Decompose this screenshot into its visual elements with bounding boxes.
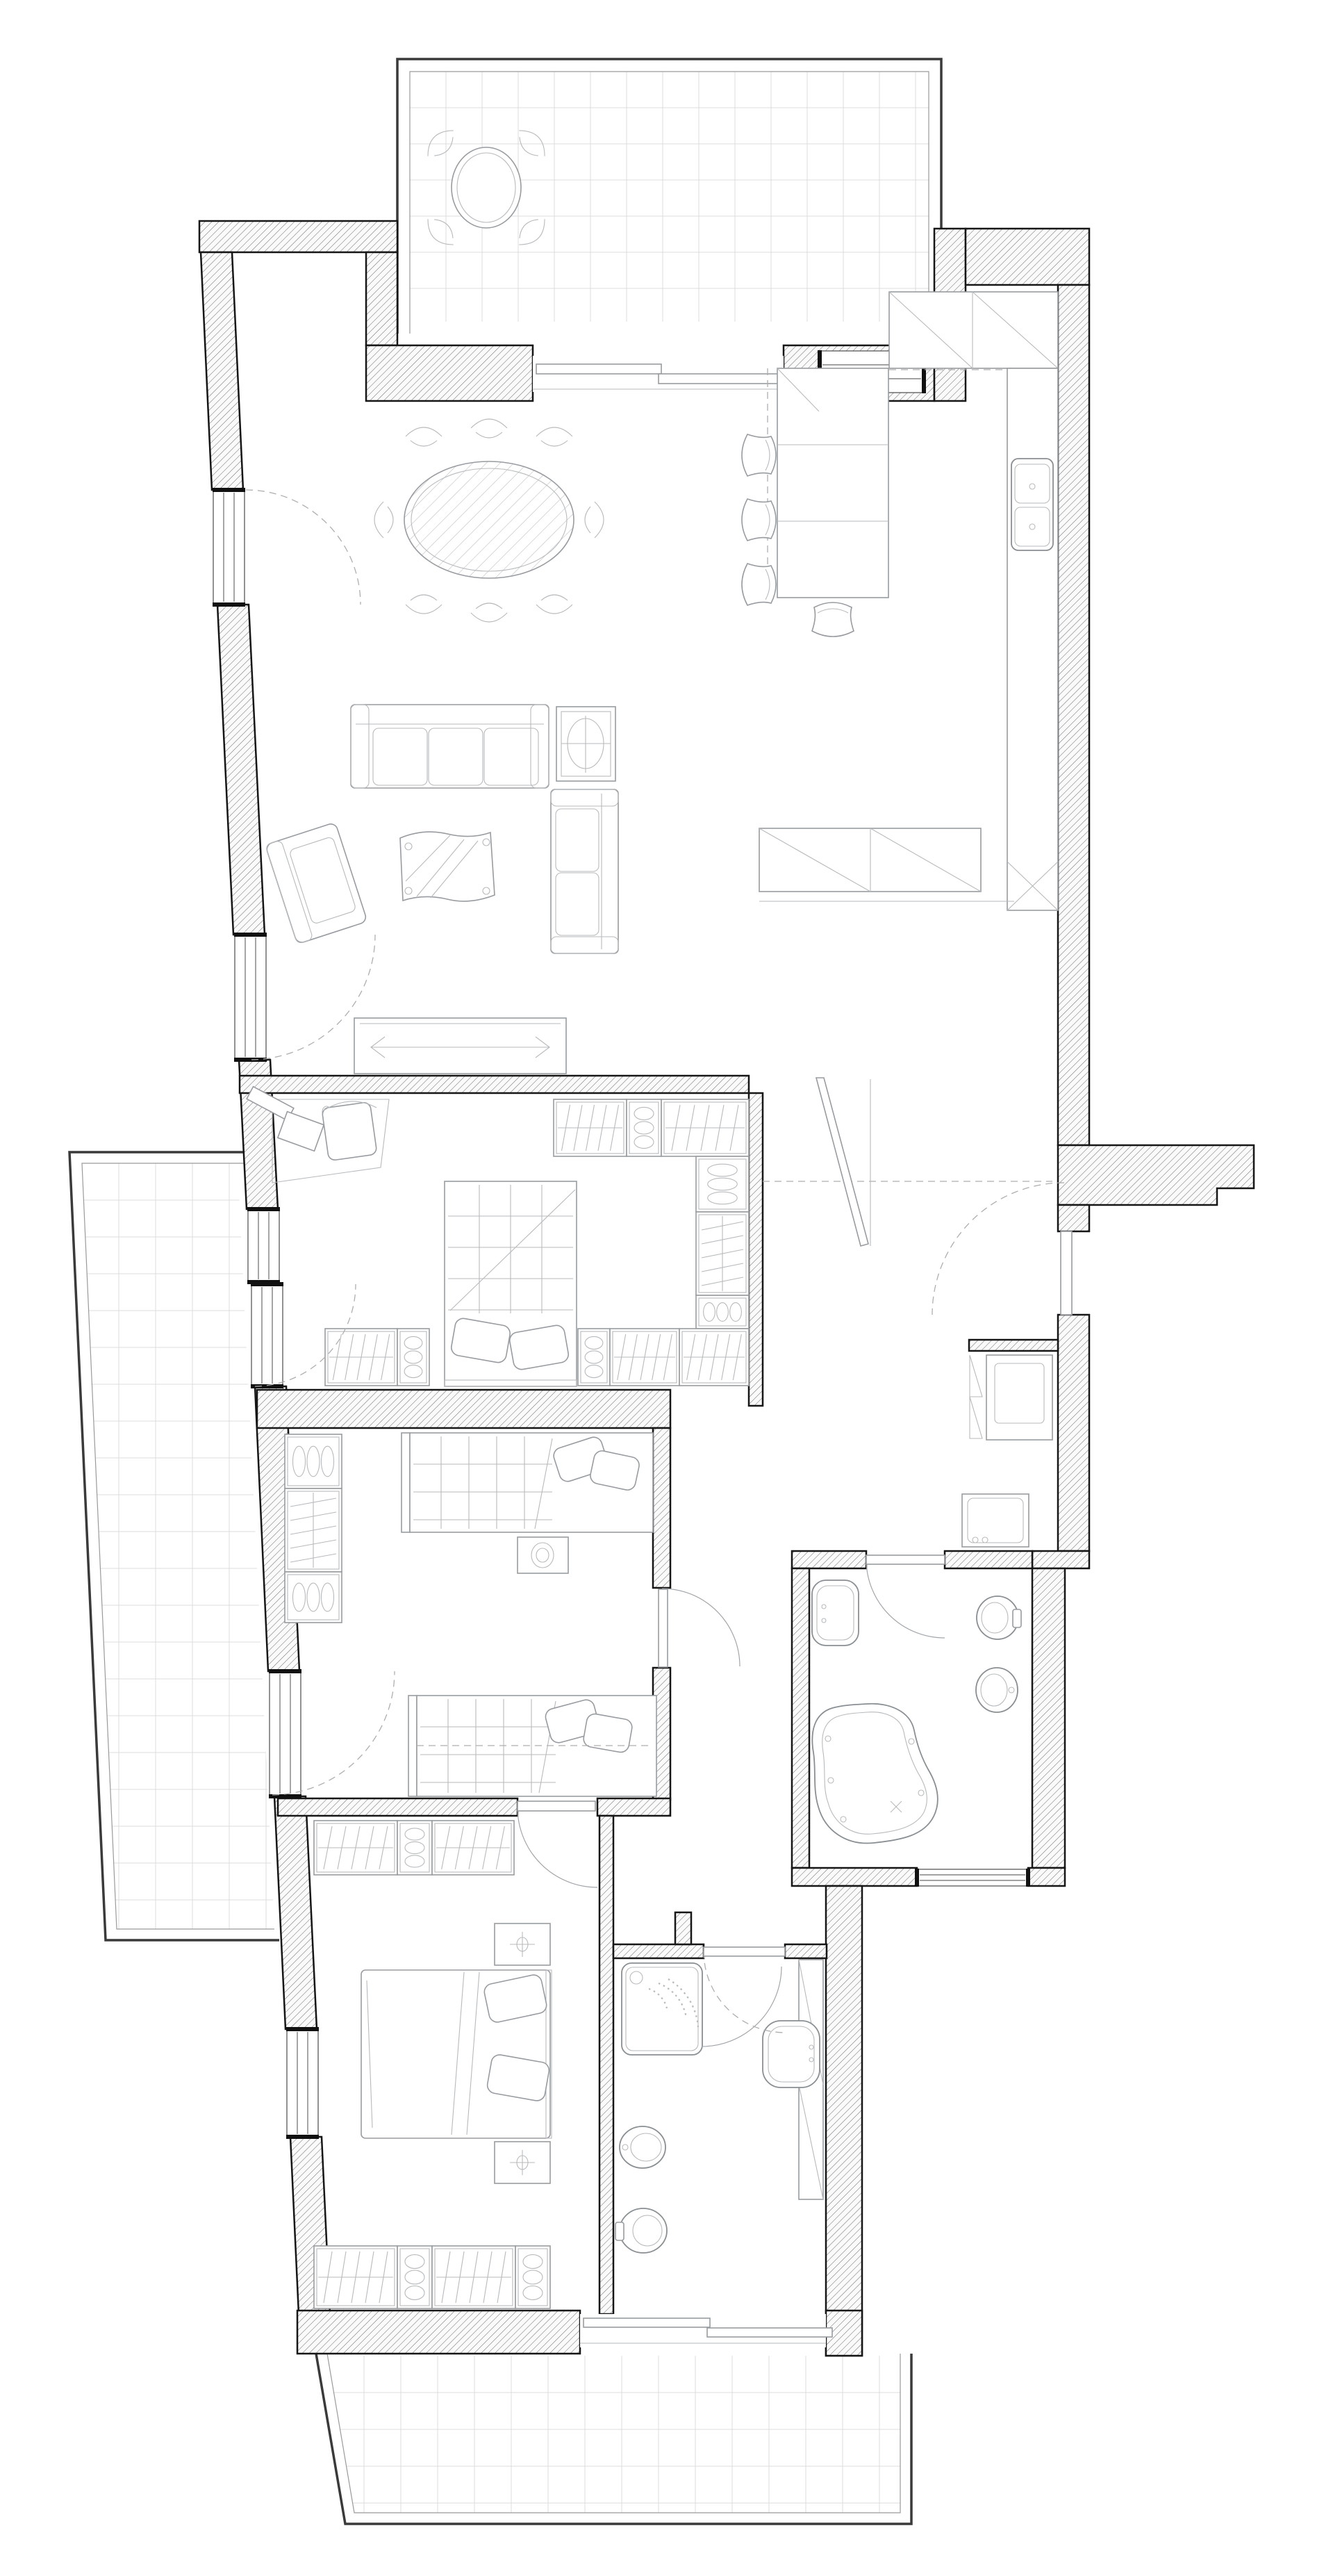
wall-right-main [1058, 285, 1089, 1145]
wall-bed1-kids-divider [257, 1390, 670, 1428]
window-bed1-small [247, 1207, 280, 1284]
bed1-wardrobe-right-2 [696, 1212, 749, 1295]
wall-bath1-top-right [945, 1551, 1032, 1568]
bath1-toilet-hinge [1013, 1609, 1021, 1627]
bed1-wardrobe-right-1 [696, 1156, 749, 1212]
sideboard [354, 1018, 566, 1074]
window-bed1-door [251, 1282, 283, 1388]
kitchen-counter-right [1007, 368, 1058, 910]
bed1-closet-right-2 [610, 1329, 679, 1386]
window-master [286, 2027, 319, 2139]
wall-bed1-right [749, 1093, 763, 1406]
kitchen-peninsula [777, 368, 888, 598]
bath2-toilet [620, 2208, 667, 2253]
master-wardrobe-bottom-1 [314, 2246, 397, 2308]
bath2-shower [622, 1963, 702, 2055]
wall-right-below-door [1058, 1315, 1089, 1551]
kids-bedB-headboard [408, 1696, 417, 1796]
wall-bath1-top-left [792, 1551, 866, 1568]
floor-plan-svg [0, 0, 1324, 2576]
laundry-washer [962, 1494, 1029, 1547]
bed1-closet-left-1 [325, 1329, 397, 1386]
entry-door-leaf [1061, 1231, 1072, 1315]
master-wardrobe-bottom-2 [397, 2246, 432, 2308]
bed1-closet-left-2 [397, 1329, 429, 1386]
wall-bath2-top-right [785, 1944, 827, 1958]
wall-exterior-lower-right [826, 1886, 862, 2356]
wall-kids-master-divider-l [278, 1798, 518, 1816]
wall-kids-right-a [653, 1428, 670, 1588]
wall-bath1-connector [1032, 1551, 1089, 1568]
wall-top-right [966, 229, 1089, 285]
wall-right-above-door [1058, 1205, 1089, 1231]
kitchen-stool-2 [742, 499, 776, 541]
balcony-slider-panel-1 [536, 364, 661, 374]
kids-bedB-pillow-2 [582, 1713, 633, 1754]
bath2-toilet-hinge [615, 2222, 624, 2240]
wall-tech-closet-band [969, 1340, 1058, 1351]
window-living-lower [234, 933, 267, 1062]
wall-bath1-right [1032, 1568, 1065, 1868]
window-living-upper [213, 488, 245, 607]
wall-living-bed1-divider [240, 1076, 749, 1093]
kids-bedA-headboard [402, 1433, 410, 1532]
kids-wardrobe-3 [285, 1572, 342, 1623]
bed1-wardrobe-top-2 [627, 1099, 661, 1156]
coffee-table [400, 832, 495, 901]
master-wardrobe-top-1 [314, 1821, 397, 1875]
balcony-table [452, 147, 521, 228]
bed1-closet-right-3 [679, 1329, 749, 1386]
kids-wardrobe-1 [285, 1434, 342, 1488]
floor-plan-page [0, 0, 1324, 2576]
kids-wardrobe-2 [285, 1488, 342, 1572]
wall-bath1-bottom-right [1028, 1868, 1065, 1886]
wall-kids-master-divider-r [597, 1798, 670, 1816]
wall-master-bottom [297, 2311, 580, 2354]
master-wardrobe-top-3 [432, 1821, 514, 1875]
bath2-bidet [620, 2126, 665, 2168]
window-bath1 [915, 1869, 1030, 1887]
kitchen-wall-cabinets [889, 292, 1058, 368]
tech-closet-appliance [986, 1355, 1052, 1440]
wall-vestibule-pillar [675, 1912, 691, 1944]
kitchen-stool-4 [812, 602, 854, 637]
master-wardrobe-top-2 [397, 1821, 432, 1875]
dining-table [404, 461, 574, 578]
wall-master-right [599, 1816, 613, 2314]
bottom-slider-panel-2 [707, 2328, 832, 2337]
kitchen-stool-1 [742, 434, 776, 476]
bed1-wardrobe-right-3 [696, 1295, 749, 1329]
wall-top-left [199, 221, 397, 252]
sofa-3seat-frame [351, 705, 549, 788]
bath2-basin [763, 2021, 820, 2087]
kitchen-sink [1011, 459, 1053, 550]
bath2-door-leaf [704, 1947, 785, 1956]
kitchen-stool-3 [742, 564, 776, 605]
wall-top-balcony-left [366, 345, 533, 401]
master-door-leaf [518, 1801, 595, 1811]
balcony-slider-panel-2 [659, 374, 782, 384]
bed1-wardrobe-top-1 [554, 1099, 627, 1156]
wall-bath1-bottom-left [792, 1868, 917, 1886]
bath1-door-leaf [866, 1555, 945, 1564]
master-wardrobe-bottom-3 [432, 2246, 515, 2308]
kids-door-leaf [659, 1589, 668, 1667]
wall-bath1-left [792, 1568, 809, 1868]
wall-top-step [366, 252, 397, 345]
bed1-wardrobe-top-3 [661, 1099, 749, 1156]
bed1-closet-right-1 [578, 1329, 610, 1386]
bed1-desk-chair [322, 1101, 377, 1160]
master-wardrobe-bottom-4 [515, 2246, 550, 2308]
wall-bath2-top-left [613, 1944, 704, 1958]
bottom-slider-panel-1 [584, 2318, 710, 2327]
window-kids-door [269, 1669, 301, 1798]
